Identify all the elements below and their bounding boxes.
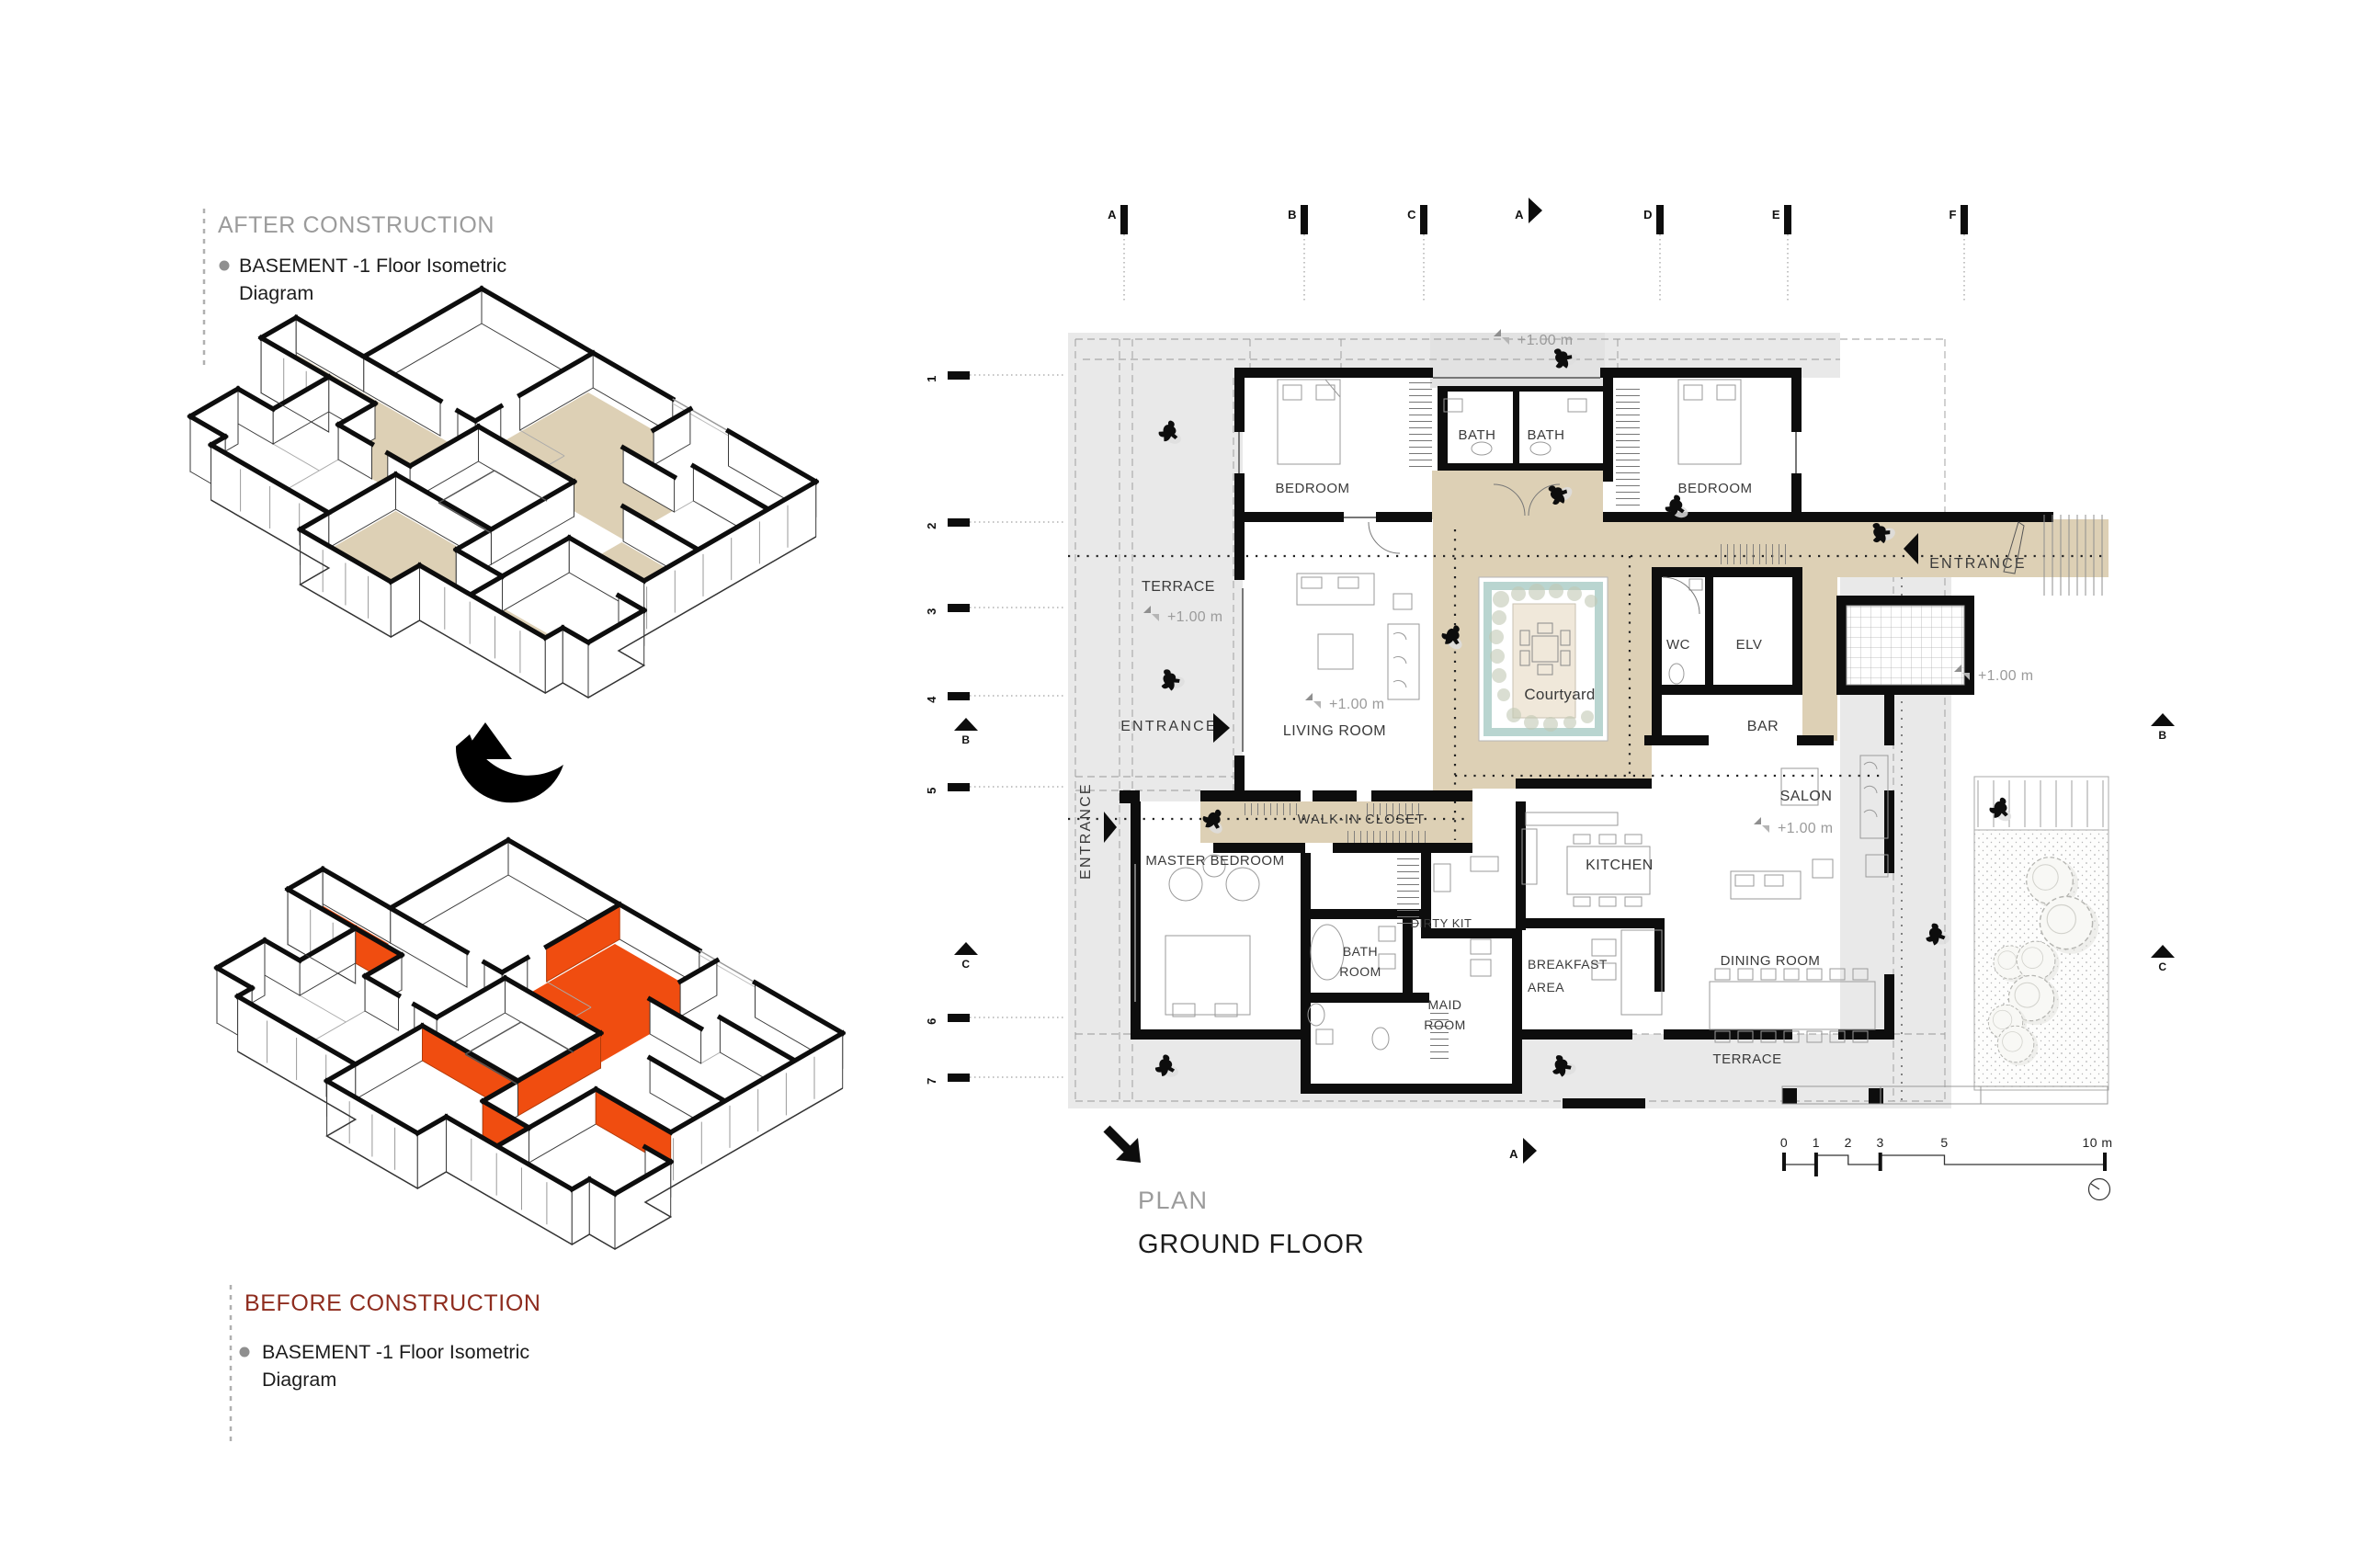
svg-text:F: F	[1949, 208, 1957, 222]
svg-text:+1.00 m: +1.00 m	[1329, 697, 1384, 712]
svg-text:ENTRANCE: ENTRANCE	[1929, 556, 2027, 572]
svg-text:Diagram: Diagram	[262, 1369, 336, 1391]
svg-text:D: D	[1643, 208, 1653, 222]
svg-text:ROOM: ROOM	[1424, 1017, 1466, 1032]
svg-text:+1.00 m: +1.00 m	[1167, 609, 1222, 625]
svg-text:+1.00 m: +1.00 m	[1518, 333, 1573, 348]
svg-text:MAID: MAID	[1428, 997, 1462, 1012]
svg-text:6: 6	[925, 1017, 938, 1025]
svg-text:BASEMENT -1 Floor Isometric: BASEMENT -1 Floor Isometric	[239, 255, 506, 277]
svg-text:KITCHEN: KITCHEN	[1586, 858, 1654, 873]
svg-text:C: C	[1407, 208, 1416, 222]
svg-text:BEFORE CONSTRUCTION: BEFORE CONSTRUCTION	[244, 1290, 541, 1316]
svg-text:TERRACE: TERRACE	[1712, 1051, 1781, 1067]
svg-text:BATH: BATH	[1459, 427, 1496, 443]
svg-text:2: 2	[1845, 1135, 1852, 1150]
svg-text:5: 5	[1940, 1135, 1948, 1150]
svg-text:C: C	[961, 958, 970, 971]
svg-text:2: 2	[925, 522, 938, 529]
svg-text:BASEMENT -1 Floor Isometric: BASEMENT -1 Floor Isometric	[262, 1341, 529, 1363]
svg-text:3: 3	[1877, 1135, 1884, 1150]
svg-text:BEDROOM: BEDROOM	[1275, 481, 1349, 496]
svg-text:WALK-IN CLOSET: WALK-IN CLOSET	[1298, 812, 1426, 827]
svg-text:ELV: ELV	[1736, 637, 1763, 653]
svg-text:Courtyard: Courtyard	[1524, 686, 1595, 703]
svg-text:B: B	[2158, 729, 2166, 742]
svg-text:TERRACE: TERRACE	[1142, 579, 1215, 595]
svg-text:A: A	[1509, 1147, 1518, 1161]
svg-text:1: 1	[1813, 1135, 1820, 1150]
svg-text:BATH: BATH	[1528, 427, 1565, 443]
svg-text:0: 0	[1780, 1135, 1788, 1150]
svg-text:SALON: SALON	[1780, 789, 1833, 804]
svg-text:ROOM: ROOM	[1339, 964, 1381, 979]
svg-text:5: 5	[925, 787, 938, 794]
svg-text:E: E	[1772, 208, 1780, 222]
svg-text:GROUND FLOOR: GROUND FLOOR	[1138, 1230, 1364, 1259]
svg-text:AFTER CONSTRUCTION: AFTER CONSTRUCTION	[218, 212, 494, 238]
svg-text:+1.00 m: +1.00 m	[1778, 821, 1833, 836]
svg-text:+1.00 m: +1.00 m	[1978, 668, 2033, 684]
svg-text:B: B	[961, 733, 970, 746]
svg-text:BREAKFAST: BREAKFAST	[1528, 957, 1608, 971]
svg-text:4: 4	[925, 696, 938, 703]
svg-text:ENTRANCE: ENTRANCE	[1120, 719, 1218, 734]
svg-text:7: 7	[925, 1077, 938, 1085]
svg-text:WC: WC	[1666, 637, 1690, 653]
svg-text:BATH: BATH	[1343, 944, 1378, 959]
svg-text:PLAN: PLAN	[1138, 1187, 1209, 1214]
svg-text:A: A	[1515, 208, 1524, 222]
svg-text:1: 1	[925, 375, 938, 382]
svg-text:MASTER BEDROOM: MASTER BEDROOM	[1145, 853, 1284, 869]
svg-text:ENTRANCE: ENTRANCE	[1078, 782, 1094, 880]
svg-text:AREA: AREA	[1528, 980, 1564, 994]
svg-text:3: 3	[925, 608, 938, 615]
svg-text:DIRTY KIT: DIRTY KIT	[1411, 916, 1472, 930]
svg-text:A: A	[1108, 208, 1117, 222]
svg-text:C: C	[2158, 960, 2166, 973]
svg-text:LIVING ROOM: LIVING ROOM	[1283, 723, 1386, 739]
svg-text:B: B	[1288, 208, 1297, 222]
svg-text:DINING ROOM: DINING ROOM	[1721, 953, 1821, 969]
svg-text:10 m: 10 m	[2082, 1135, 2112, 1150]
svg-text:Diagram: Diagram	[239, 282, 313, 304]
svg-text:BAR: BAR	[1747, 719, 1779, 734]
svg-text:BEDROOM: BEDROOM	[1677, 481, 1752, 496]
